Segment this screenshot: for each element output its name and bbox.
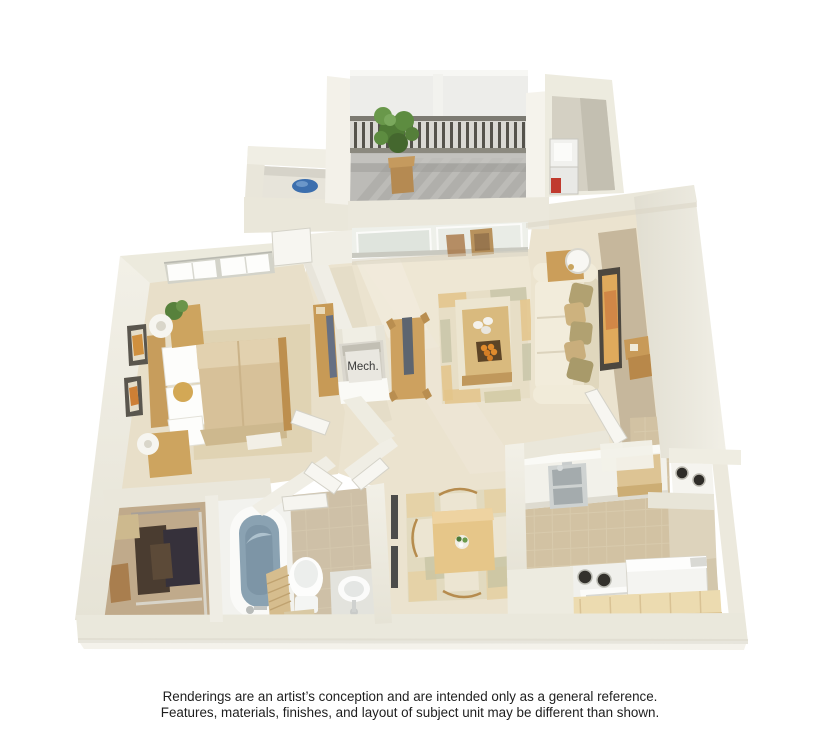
svg-text:Mech.: Mech.: [347, 361, 378, 373]
